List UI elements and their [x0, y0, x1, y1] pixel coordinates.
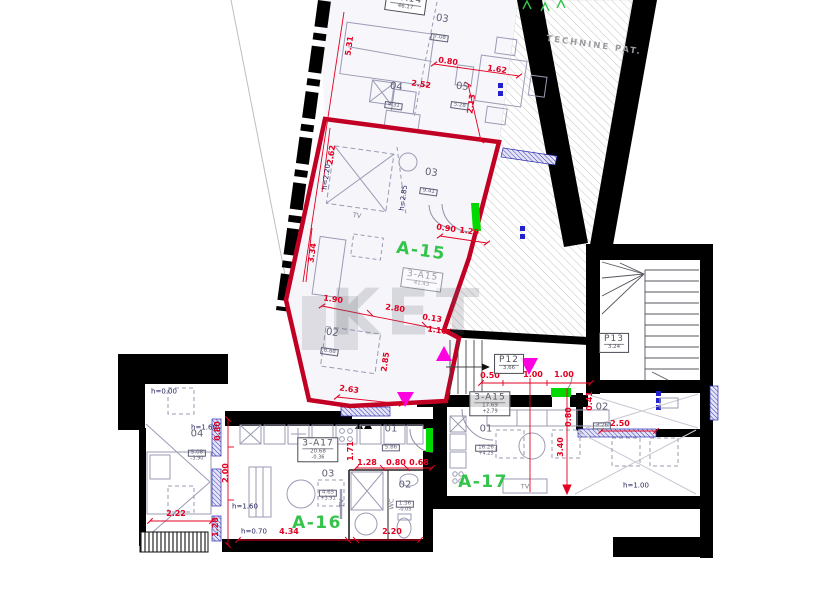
room-label: 044.31: [384, 81, 406, 111]
unit-info-box: 3-A1720.68-0.36: [297, 437, 338, 462]
room-label: 039.41: [419, 167, 441, 197]
apartment-number-label: A-17: [458, 474, 508, 492]
room-label: 028.88: [320, 327, 342, 357]
dimension-label: 3.40: [557, 437, 565, 457]
apartment-number-label: A-16: [292, 515, 342, 533]
dimension-label: 2.00: [222, 463, 230, 483]
watermark-text: KET: [331, 280, 486, 347]
unit-info-box: P123.66: [494, 354, 524, 374]
height-label: h=1.00: [623, 482, 649, 489]
room-label: 021.36-0.05: [396, 481, 414, 514]
dimension-label: 2.50: [610, 420, 630, 428]
floor-plan-canvas: KET 5.312.623.342.132.520.801.620.901.20…: [0, 0, 825, 604]
dimension-label: 1.28: [357, 459, 377, 467]
annotation-label: TV: [352, 212, 361, 220]
dimension-label: 0.80: [386, 459, 406, 467]
room-label: 045.08-3.90: [188, 430, 206, 463]
room-label: 0116.26+4.25: [475, 425, 497, 458]
dimension-label: 2.22: [166, 510, 186, 518]
unit-info-box: P133.24: [599, 333, 629, 353]
room-label: 037.08: [430, 13, 452, 43]
dimension-label: 1.71: [347, 441, 355, 461]
height-label: h=0.70: [241, 528, 267, 535]
dimension-label: 1.00: [554, 371, 574, 379]
dimension-label: 1.00: [523, 371, 543, 379]
staircase-p13: [602, 262, 699, 380]
unit-info-box: 3-A1517.69+2.79: [469, 391, 510, 416]
height-label: h=0.00: [151, 388, 177, 395]
room-label: 023.26: [593, 402, 611, 429]
room-label: 055.28: [450, 81, 472, 111]
dimension-label: 2.20: [382, 528, 402, 536]
annotation-label: TV: [339, 499, 346, 507]
room-label: 015.86: [382, 424, 400, 451]
room-label: 034.65+3.91: [319, 470, 337, 503]
radiator: [140, 532, 208, 552]
dimension-label: 0.68: [409, 459, 429, 467]
dimension-label: 1.28: [212, 517, 220, 537]
dimension-label: 0.80: [565, 407, 573, 427]
annotation-label: WC: [389, 499, 396, 510]
annotation-label: TV: [521, 484, 529, 491]
height-label: h=1.60: [232, 503, 258, 510]
